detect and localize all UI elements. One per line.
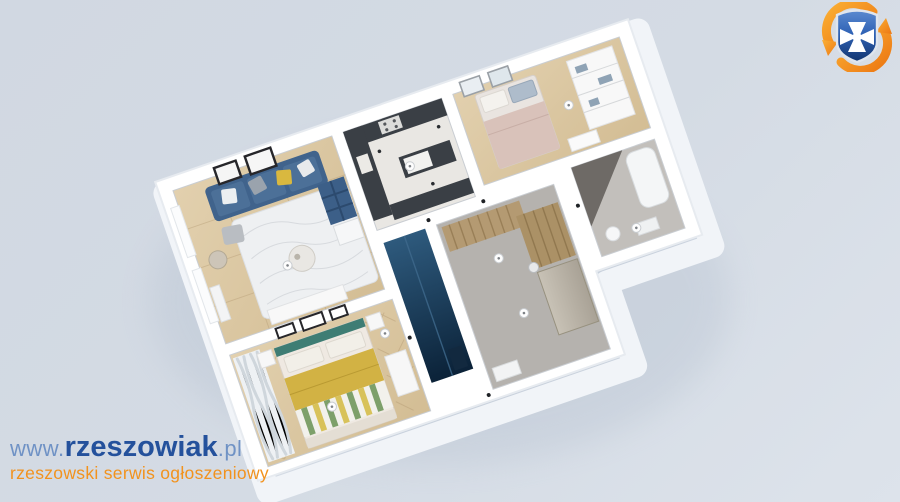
floorplan-render: [0, 0, 900, 502]
watermark-brand: rzeszowiak: [65, 431, 218, 463]
watermark-url-suffix: .pl: [218, 436, 243, 461]
site-logo: [818, 2, 896, 72]
watermark: www.rzeszowiak.pl rzeszowski serwis ogło…: [10, 432, 269, 483]
watermark-url: www.rzeszowiak.pl: [10, 432, 269, 462]
pillow-yellow: [276, 169, 292, 185]
watermark-tagline: rzeszowski serwis ogłoszeniowy: [10, 464, 269, 482]
floorplan-model: [155, 17, 741, 494]
watermark-url-prefix: www.: [10, 436, 65, 461]
pillow-white: [221, 188, 238, 205]
screenshot-root: www.rzeszowiak.pl rzeszowski serwis ogło…: [0, 0, 900, 502]
rzeszowiak-logo-icon: [818, 2, 896, 72]
